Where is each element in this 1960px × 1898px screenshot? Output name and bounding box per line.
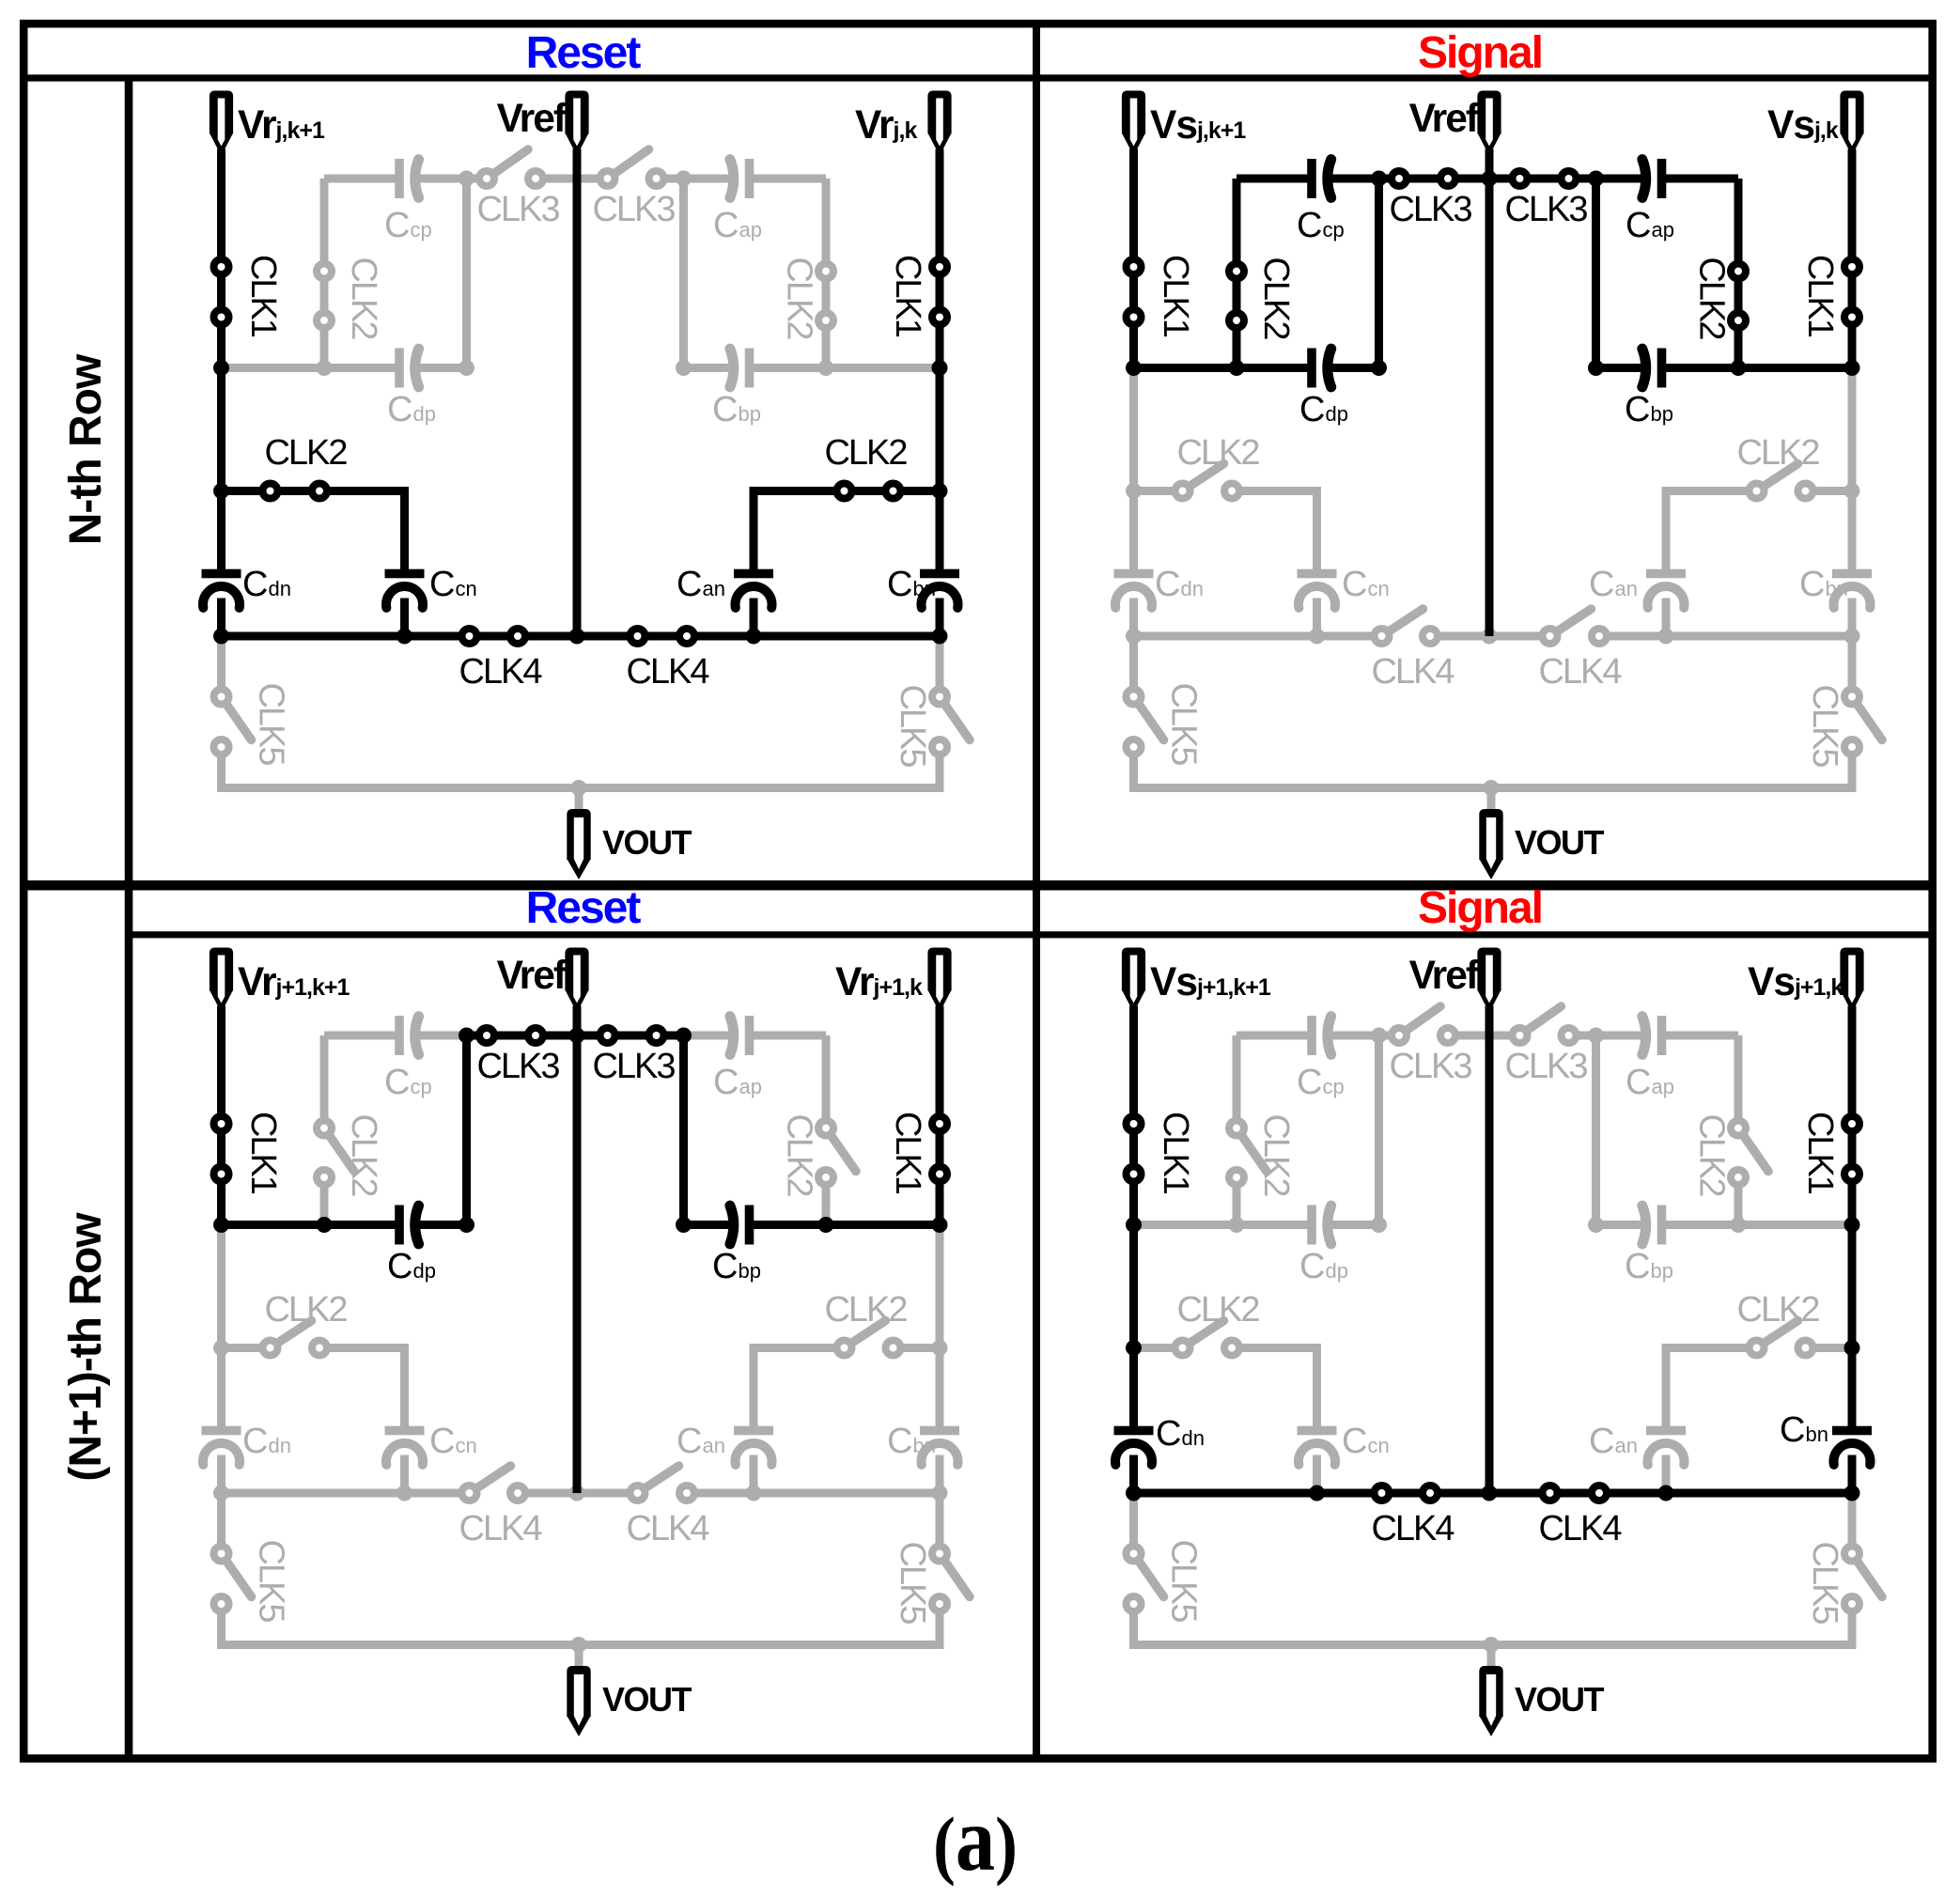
svg-text:CLK2: CLK2 <box>1692 1113 1732 1196</box>
svg-text:CLK1: CLK1 <box>888 255 927 337</box>
svg-text:CLK1: CLK1 <box>1156 1112 1195 1194</box>
svg-text:CLK2: CLK2 <box>264 1290 347 1330</box>
svg-text:Signal: Signal <box>1418 28 1542 78</box>
svg-text:CLK4: CLK4 <box>1538 1509 1622 1548</box>
svg-text:CLK2: CLK2 <box>824 433 907 473</box>
svg-text:CLK5: CLK5 <box>252 1539 291 1622</box>
svg-text:N-th Row: N-th Row <box>61 353 111 545</box>
svg-text:CLK4: CLK4 <box>626 652 709 692</box>
svg-text:CLK3: CLK3 <box>1389 1047 1471 1086</box>
svg-text:VOUT: VOUT <box>1515 823 1605 862</box>
svg-text:CLK4: CLK4 <box>459 652 542 692</box>
svg-text:CLK2: CLK2 <box>824 1290 907 1330</box>
svg-text:CLK1: CLK1 <box>1800 255 1840 337</box>
svg-text:CLK1: CLK1 <box>243 1112 283 1194</box>
svg-text:CLK4: CLK4 <box>1538 652 1622 692</box>
svg-text:CLK3: CLK3 <box>476 1047 559 1086</box>
svg-text:CLK2: CLK2 <box>780 1113 819 1196</box>
svg-text:CLK3: CLK3 <box>592 1047 675 1086</box>
svg-text:CLK4: CLK4 <box>1371 1509 1454 1548</box>
svg-text:CLK5: CLK5 <box>252 682 291 765</box>
svg-text:CLK2: CLK2 <box>1256 1113 1296 1196</box>
svg-text:CLK2: CLK2 <box>1176 1290 1259 1330</box>
svg-text:CLK2: CLK2 <box>264 433 347 473</box>
svg-text:CLK3: CLK3 <box>592 190 675 229</box>
svg-text:CLK2: CLK2 <box>1736 433 1819 473</box>
svg-text:CLK5: CLK5 <box>1805 1541 1844 1624</box>
svg-text:CLK4: CLK4 <box>1371 652 1454 692</box>
svg-text:Reset: Reset <box>526 883 642 933</box>
svg-text:CLK5: CLK5 <box>893 1541 932 1624</box>
svg-text:VOUT: VOUT <box>602 1680 692 1719</box>
svg-text:Signal: Signal <box>1418 883 1542 933</box>
svg-text:CLK5: CLK5 <box>893 684 932 767</box>
svg-text:CLK2: CLK2 <box>1736 1290 1819 1330</box>
svg-text:CLK4: CLK4 <box>459 1509 542 1548</box>
svg-text:CLK2: CLK2 <box>1256 257 1296 339</box>
svg-text:(a): (a) <box>933 1789 1018 1890</box>
svg-text:VOUT: VOUT <box>602 823 692 862</box>
svg-text:CLK2: CLK2 <box>1692 257 1732 339</box>
svg-text:CLK3: CLK3 <box>476 190 559 229</box>
svg-text:CLK1: CLK1 <box>1156 255 1195 337</box>
svg-text:CLK5: CLK5 <box>1164 1539 1204 1622</box>
svg-text:Vref: Vref <box>1409 954 1480 998</box>
svg-text:CLK5: CLK5 <box>1164 682 1204 765</box>
svg-text:Vref: Vref <box>497 97 568 141</box>
svg-text:CLK2: CLK2 <box>344 1113 383 1196</box>
svg-text:CLK2: CLK2 <box>780 257 819 339</box>
svg-text:Reset: Reset <box>526 28 642 78</box>
svg-text:CLK5: CLK5 <box>1805 684 1844 767</box>
svg-text:CLK1: CLK1 <box>1800 1112 1840 1194</box>
svg-text:(N+1)-th Row: (N+1)-th Row <box>61 1212 111 1482</box>
svg-text:CLK2: CLK2 <box>344 257 383 339</box>
svg-text:CLK2: CLK2 <box>1176 433 1259 473</box>
svg-text:CLK1: CLK1 <box>888 1112 927 1194</box>
svg-text:CLK4: CLK4 <box>626 1509 709 1548</box>
svg-text:Vref: Vref <box>497 954 568 998</box>
svg-text:CLK3: CLK3 <box>1504 190 1587 229</box>
svg-text:VOUT: VOUT <box>1515 1680 1605 1719</box>
svg-text:CLK3: CLK3 <box>1504 1047 1587 1086</box>
svg-text:CLK1: CLK1 <box>243 255 283 337</box>
svg-text:Vref: Vref <box>1409 97 1480 141</box>
svg-text:CLK3: CLK3 <box>1389 190 1471 229</box>
